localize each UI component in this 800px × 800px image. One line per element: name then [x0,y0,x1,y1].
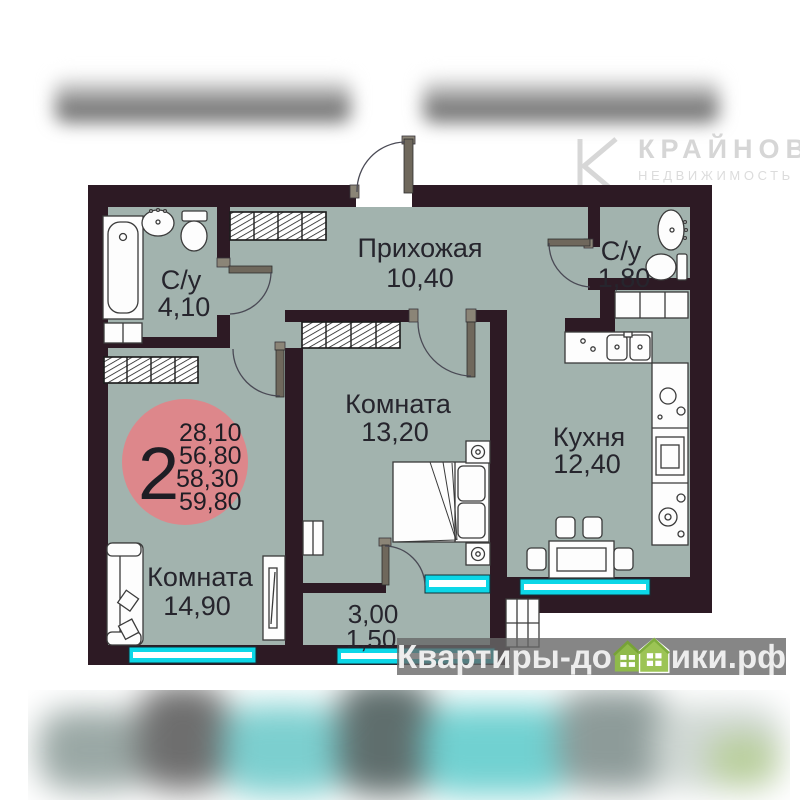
label-bathroom-main-area: 4,10 [158,292,211,322]
houses-icon [613,635,670,675]
bedroom-door-leaf [467,322,475,377]
upper-cabinets-icon [615,292,688,318]
mirror-cabinet-icon [263,556,285,640]
bathroom-guest-door-leaf [548,239,590,246]
floorplan-drawing: 2 28,10 56,80 58,30 59,80 Прихожая 10,40… [0,0,800,800]
site-watermark-bar: Квартиры-до ики.рф [397,638,786,675]
chair-icon [614,548,633,570]
label-bedroom-area: 13,20 [361,417,429,447]
floorplan-page: КРАЙНОВ НЕДВИЖИМОСТЬ [0,0,800,800]
wardrobe-icon [230,212,326,240]
oven-icon [656,437,684,475]
sofa-icon [107,543,143,645]
toilet-icon [646,254,687,280]
window-bedroom-balcony [425,575,490,593]
living-room-door-leaf [276,350,284,397]
summary-area-4: 59,80 [179,488,242,516]
bathtub-icon [103,216,143,319]
dining-table-icon [549,541,614,578]
label-hallway-area: 10,40 [386,263,454,293]
toilet-icon [181,211,207,251]
kitchen-sink-icon [565,332,652,363]
label-bathroom-guest: С/у [601,236,642,266]
site-watermark-text-left: Квартиры-до [397,640,612,673]
cabinet-icon [303,521,323,555]
summary-badge: 2 28,10 56,80 58,30 59,80 [122,399,248,525]
bathroom-door-leaf [229,266,272,273]
label-kitchen: Кухня [553,422,625,452]
label-bathroom-guest-area: 1,80 [598,263,651,293]
entry-door-leaf [404,139,413,193]
label-balcony-area-reduced: 1,50 [346,624,397,654]
washing-machine-icon [104,323,142,343]
balcony-door-leaf [382,545,389,585]
wardrobe-icon [302,322,400,348]
room-count: 2 [138,432,179,515]
chair-icon [556,517,575,538]
chair-icon [583,517,602,538]
label-hallway: Прихожая [357,233,482,263]
appliance-icon [466,543,490,565]
label-bedroom: Комната [345,389,452,419]
appliance-icon [466,441,490,463]
house-icon [613,640,642,671]
window-kitchen [520,579,650,595]
window-living-room [129,647,256,663]
label-kitchen-area: 12,40 [553,449,621,479]
label-living-room: Комната [147,562,254,592]
bed-icon [393,462,489,542]
house-icon [638,637,670,672]
wardrobe-icon [104,357,198,383]
chair-icon [527,548,546,570]
site-watermark-text-right: ики.рф [671,640,786,673]
label-living-room-area: 14,90 [163,591,231,621]
label-bathroom-main: С/у [161,265,202,295]
